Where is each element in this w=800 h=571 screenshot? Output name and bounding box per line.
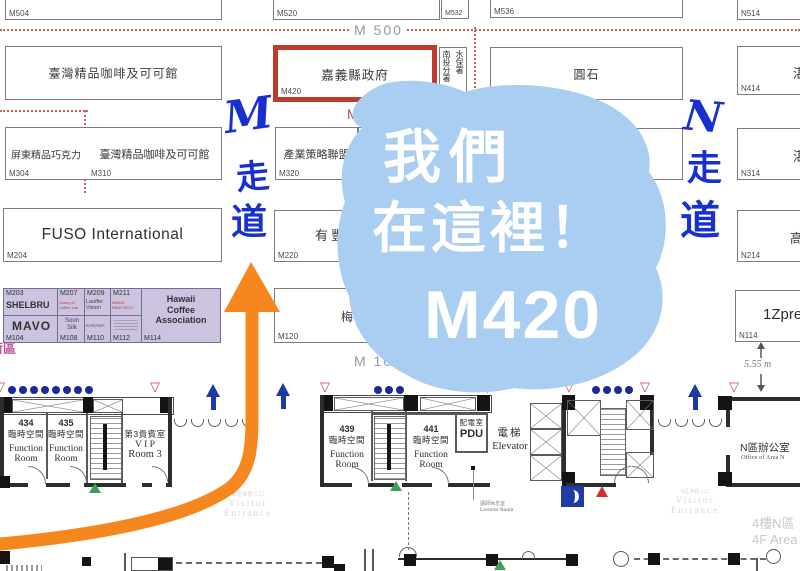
elevator-shaft bbox=[530, 429, 562, 455]
booth-m112: M112 bbox=[111, 316, 142, 343]
booth-name: 圓石 bbox=[491, 65, 682, 82]
door-symbol bbox=[613, 551, 629, 567]
wall bbox=[166, 483, 172, 487]
orange-arrow-head bbox=[224, 262, 280, 312]
booth-name: FUSO International bbox=[4, 226, 221, 244]
booth-taiwan-coffee-top: 臺灣精品咖啡及可可館 bbox=[5, 46, 222, 100]
booth-name: 屏東精品巧克力 bbox=[6, 146, 86, 161]
watermark-en: Entrance bbox=[218, 508, 278, 518]
staircase bbox=[600, 408, 626, 476]
red-triangle-marker bbox=[596, 486, 608, 497]
booth-gov-partial: 府 bbox=[490, 128, 683, 180]
booth-strategy-alliance: 產業策略聯盟 M320 bbox=[275, 127, 358, 180]
room-name-en: Function bbox=[408, 450, 454, 460]
booth-number: M209 bbox=[87, 290, 105, 297]
booth-m209: M209 Lauffer Vision bbox=[85, 289, 111, 316]
wall bbox=[455, 451, 488, 453]
booth-number: M320 bbox=[279, 169, 299, 178]
room-434-label: 434 臨時空間 Function Room bbox=[6, 418, 46, 464]
booth-pingtung-taiwan-combined: 屏東精品巧克力 M304 臺灣精品咖啡及可可館 M310 bbox=[5, 127, 222, 180]
wall bbox=[142, 483, 152, 487]
wall bbox=[46, 483, 70, 487]
floor-zh: 4樓N區 bbox=[752, 513, 798, 532]
room-name-en: Room bbox=[46, 454, 86, 464]
blue-dot bbox=[614, 386, 622, 394]
wall-post bbox=[718, 396, 732, 410]
door-arc bbox=[152, 466, 168, 482]
bubble-text-line2: 在這裡！ bbox=[372, 183, 608, 263]
wall bbox=[371, 411, 373, 481]
door-arc bbox=[522, 551, 535, 559]
wall bbox=[402, 483, 432, 487]
red-triangle-marker: ▽ bbox=[484, 384, 491, 394]
room-name-zh: 第3貴賓室 bbox=[122, 428, 168, 440]
booth-n414: 湛 N414 bbox=[737, 46, 800, 95]
green-triangle-marker bbox=[89, 483, 101, 493]
room-name-en: Function bbox=[6, 444, 46, 454]
room-435-label: 435 臨時空間 Function Room bbox=[46, 418, 86, 464]
floor-area-watermark: 4樓N區 4F Area bbox=[752, 513, 798, 547]
dashed-wall bbox=[176, 562, 322, 564]
room-441-label: 441 臨時空間 Function Room bbox=[408, 424, 454, 470]
wall bbox=[373, 413, 488, 415]
wall-post bbox=[0, 476, 10, 488]
wall-post bbox=[404, 554, 416, 566]
booth-m504: M504 bbox=[5, 0, 222, 20]
handwriting-m-dao: 道 bbox=[231, 193, 267, 245]
room-name-en: Room bbox=[408, 460, 454, 470]
tiny-text-fragment bbox=[6, 565, 42, 571]
booth-m532: M532 bbox=[441, 0, 469, 19]
floor-en: 4F Area bbox=[752, 532, 798, 547]
tiny-text-lines bbox=[114, 319, 138, 330]
booth-number: N414 bbox=[741, 84, 760, 93]
booth-number: M304 bbox=[9, 169, 29, 178]
blue-dot bbox=[592, 386, 600, 394]
blue-dot bbox=[41, 386, 49, 394]
booth-number: N314 bbox=[741, 169, 760, 178]
room-name-en: Room 3 bbox=[122, 450, 168, 460]
elevator-shaft bbox=[567, 400, 601, 436]
aisle-label-m500: M 500 bbox=[350, 22, 407, 38]
booth-name-partial: 府 bbox=[611, 147, 624, 166]
visitor-entrance-watermark-left: M區參觀入口 Visitor Entrance bbox=[218, 490, 278, 518]
booth-n514: N514 bbox=[737, 0, 800, 20]
wall-post bbox=[404, 395, 418, 411]
booth-number: M112 bbox=[113, 335, 130, 342]
blue-dot bbox=[52, 386, 60, 394]
booth-number: M120 bbox=[278, 332, 298, 341]
booth-number: N114 bbox=[739, 331, 758, 340]
booth-number: M220 bbox=[278, 251, 298, 260]
wall bbox=[320, 395, 324, 487]
red-triangle-marker: ▽ bbox=[150, 382, 160, 392]
wall-post bbox=[334, 564, 345, 571]
booth-name-partial: 高 bbox=[790, 228, 800, 247]
zone-dotted-line-h bbox=[0, 110, 88, 112]
corridor-doors bbox=[658, 419, 726, 427]
wall-post bbox=[0, 551, 10, 564]
watermark-en: Visitor bbox=[664, 495, 726, 505]
wall bbox=[168, 397, 172, 487]
booth-yuanshi: 圓石 bbox=[490, 47, 683, 100]
room-number: 435 bbox=[46, 418, 86, 428]
booth-m203: M203 SHELBRU bbox=[4, 289, 58, 316]
booth-number: M520 bbox=[277, 9, 297, 18]
booth-name-line: Coffee bbox=[142, 305, 220, 316]
room-number: 434 bbox=[6, 418, 46, 428]
booth-name-column: 水保署 bbox=[454, 50, 465, 95]
handwriting-m-zou: 走 bbox=[234, 149, 271, 200]
booth-n314: 湛 N314 bbox=[737, 128, 800, 180]
red-triangle-marker: ▽ bbox=[0, 382, 5, 392]
vip-room-3-label: 第3貴賓室 V I P Room 3 bbox=[122, 428, 168, 460]
booth-number: M310 bbox=[91, 169, 111, 178]
phone-glyph bbox=[567, 490, 579, 503]
booth-number: M204 bbox=[7, 251, 27, 260]
n-office-label-zh: N區辦公室 bbox=[740, 440, 790, 455]
wall bbox=[726, 483, 800, 487]
wall bbox=[364, 549, 366, 571]
lecturer-room-label-en: Lecturer Room bbox=[480, 507, 513, 513]
booth-name: KARANA bbox=[86, 323, 105, 328]
booth-name: 梅珍香 bbox=[341, 308, 380, 325]
aisle-label-m100: M 100 bbox=[350, 353, 407, 369]
wall-post bbox=[728, 553, 740, 565]
watermark-zh: N區參觀入口 bbox=[664, 488, 726, 495]
purple-booth-block: M203 SHELBRU M207 Sunny M Coffee Lab M20… bbox=[3, 288, 221, 343]
booth-name: 臺灣精品咖啡及可可館 bbox=[6, 65, 221, 82]
booth-name: Soon Silk bbox=[61, 318, 83, 332]
booth-m110: KARANA M110 bbox=[85, 316, 111, 343]
dimension-label: 5.55 m bbox=[744, 359, 771, 370]
hatched-wall bbox=[12, 399, 84, 413]
public-phone-icon bbox=[561, 486, 584, 507]
wall bbox=[726, 397, 800, 401]
door-symbol bbox=[766, 549, 781, 564]
hatched-wall bbox=[420, 397, 476, 411]
corridor-doors bbox=[174, 419, 259, 427]
wall-post bbox=[477, 395, 490, 411]
hatched-wall bbox=[334, 397, 404, 411]
booth-name: Lauffer Vision bbox=[86, 299, 110, 311]
booth-name-partial: 旺 bbox=[365, 135, 377, 152]
wall bbox=[0, 397, 4, 487]
handwriting-m: M bbox=[221, 87, 276, 144]
aisle-line-vertical bbox=[474, 27, 476, 100]
room-name-en: PDU bbox=[456, 428, 487, 440]
visitor-entrance-watermark-right: N區參觀入口 Visitor Entrance bbox=[664, 488, 726, 515]
booth-name: 嘉義縣政府 bbox=[278, 64, 432, 83]
exhibition-floor-map: M504 M520 M532 M536 N514 M 500 臺灣精品咖啡及可可… bbox=[0, 0, 800, 571]
booth-name-line: Association bbox=[142, 315, 220, 326]
watermark-en: Visitor bbox=[218, 498, 278, 508]
room-name-zh: 臨時空間 bbox=[46, 428, 86, 440]
wall-post bbox=[648, 553, 660, 565]
red-triangle-marker: ▽ bbox=[320, 382, 330, 392]
room-name-en: Room bbox=[326, 460, 368, 470]
wall-post bbox=[718, 472, 732, 486]
elevator-shaft bbox=[626, 400, 654, 430]
booth-name: 有豐 bbox=[315, 225, 347, 244]
blue-dot bbox=[625, 386, 633, 394]
booth-number: M532 bbox=[445, 10, 463, 17]
booth-1zpresso: 1Zpre N114 bbox=[735, 290, 800, 342]
blue-dot bbox=[396, 386, 404, 394]
blue-up-arrow bbox=[206, 384, 220, 397]
wall bbox=[86, 413, 88, 485]
room-name-en: Elevator bbox=[488, 442, 532, 452]
booth-name-partial: 湛 bbox=[793, 63, 800, 82]
red-triangle-marker: ▽ bbox=[729, 382, 739, 392]
watermark-en: Entrance bbox=[664, 505, 726, 515]
wall-post bbox=[566, 554, 578, 566]
pdu-room-label: 配電室 PDU bbox=[456, 417, 487, 440]
booth-chiayi-government-highlighted: 嘉義縣政府 M420 bbox=[273, 45, 437, 102]
room-name-en: Room bbox=[6, 454, 46, 464]
blue-dot bbox=[374, 386, 382, 394]
booth-name: MAVO bbox=[12, 319, 51, 333]
area-zone-label: 荷區 bbox=[0, 338, 16, 357]
blue-dot bbox=[63, 386, 71, 394]
room-name-zh: 臨時空間 bbox=[326, 434, 368, 446]
room-name-zh: 配電室 bbox=[456, 417, 487, 428]
green-triangle-marker bbox=[390, 481, 402, 491]
booth-pingtung: 屏東精品巧克力 M304 bbox=[6, 128, 86, 179]
wall-post bbox=[83, 397, 93, 413]
blue-up-arrow bbox=[276, 383, 290, 396]
booth-m207: M207 Sunny M Coffee Lab bbox=[58, 289, 85, 316]
wall-post bbox=[82, 557, 91, 566]
room-number: 441 bbox=[408, 424, 454, 434]
wall-post bbox=[322, 556, 334, 568]
wall bbox=[372, 549, 374, 571]
elevator-label: 電梯 Elevator bbox=[488, 425, 532, 452]
booth-number: M110 bbox=[87, 335, 104, 342]
wall bbox=[448, 483, 490, 487]
red-triangle-marker: ▽ bbox=[640, 382, 650, 392]
booth-number: M536 bbox=[494, 7, 514, 16]
watermark-zh: M區參觀入口 bbox=[218, 490, 278, 498]
booth-name: SHELBRU bbox=[6, 300, 50, 310]
wall bbox=[320, 483, 352, 487]
booth-number: N214 bbox=[741, 251, 760, 260]
door-arc bbox=[28, 466, 46, 484]
blue-up-arrow bbox=[688, 384, 702, 397]
booth-m108: Soon Silk M108 bbox=[58, 316, 85, 343]
elevator-shaft bbox=[530, 455, 562, 481]
booth-name: ANHUI REALTECH bbox=[112, 300, 141, 310]
booth-number: M207 bbox=[60, 290, 78, 297]
stair-rail bbox=[103, 424, 107, 470]
booth-name: Sunny M Coffee Lab bbox=[59, 300, 84, 310]
blue-dot bbox=[85, 386, 93, 394]
door-arc bbox=[70, 466, 87, 483]
blue-dot bbox=[19, 386, 27, 394]
booth-number: M504 bbox=[9, 9, 29, 18]
wall bbox=[124, 553, 126, 571]
room-name-en: Function bbox=[46, 444, 86, 454]
booth-number: M211 bbox=[113, 290, 130, 297]
wall bbox=[756, 558, 758, 571]
bubble-text-booth-number: M420 bbox=[424, 276, 602, 354]
booth-name-column: 南投分署 bbox=[441, 50, 452, 95]
blue-dot bbox=[30, 386, 38, 394]
lecturer-room-label-zh: 講師休息室 bbox=[480, 500, 505, 507]
leader-line bbox=[473, 470, 474, 500]
booth-number: M114 bbox=[144, 335, 161, 342]
booth-fuso: FUSO International M204 bbox=[3, 208, 222, 262]
booth-m536: M536 bbox=[490, 0, 683, 18]
booth-m520: M520 bbox=[273, 0, 440, 20]
room-439-label: 439 臨時空間 Function Room bbox=[326, 424, 368, 470]
room-number: 439 bbox=[326, 424, 368, 434]
booth-m211: M211 ANHUI REALTECH bbox=[111, 289, 142, 316]
dashed-guide-line bbox=[408, 492, 409, 550]
booth-name: 產業策略聯盟 bbox=[276, 146, 357, 162]
red-triangle-marker: ▽ bbox=[564, 382, 574, 392]
n-office-label-en: Office of Area N bbox=[741, 454, 785, 461]
wall-post bbox=[158, 558, 172, 570]
handwriting-n-dao: 道 bbox=[680, 188, 720, 246]
elevator-shaft bbox=[530, 403, 562, 429]
blue-dot bbox=[74, 386, 82, 394]
blue-dot bbox=[385, 386, 393, 394]
booth-m114-hawaii: Hawaii Coffee Association M114 bbox=[142, 289, 221, 343]
booth-n214: 高 N214 bbox=[737, 210, 800, 262]
handwriting-n-zou: 走 bbox=[687, 140, 722, 191]
blue-dot bbox=[8, 386, 16, 394]
room-name-zh: 臨時空間 bbox=[408, 434, 454, 446]
blue-dot bbox=[603, 386, 611, 394]
booth-number: M108 bbox=[60, 335, 78, 342]
room-name-zh: 電梯 bbox=[488, 425, 532, 440]
booth-swcb: 南投分署 水保署 bbox=[439, 47, 467, 96]
green-triangle-marker bbox=[494, 560, 506, 570]
room-name-en: Function bbox=[326, 450, 368, 460]
booth-name: 臺灣精品咖啡及可可館 bbox=[88, 146, 221, 162]
hatched-wall bbox=[93, 399, 123, 413]
handwriting-n: N bbox=[682, 90, 725, 142]
booth-number: N514 bbox=[741, 9, 760, 18]
booth-name: 1Zpre bbox=[763, 306, 800, 323]
booth-name-partial: 湛 bbox=[793, 146, 800, 165]
stair-rail bbox=[387, 424, 391, 470]
room-name-zh: 臨時空間 bbox=[6, 428, 46, 440]
booth-number: M203 bbox=[6, 290, 24, 297]
booth-name-line: Hawaii bbox=[142, 294, 220, 305]
booth-taiwan-coffee-mid: 臺灣精品咖啡及可可館 M310 bbox=[88, 128, 221, 179]
booth-number: M420 bbox=[281, 87, 301, 96]
bubble-text-line1: 我們 bbox=[383, 110, 515, 194]
